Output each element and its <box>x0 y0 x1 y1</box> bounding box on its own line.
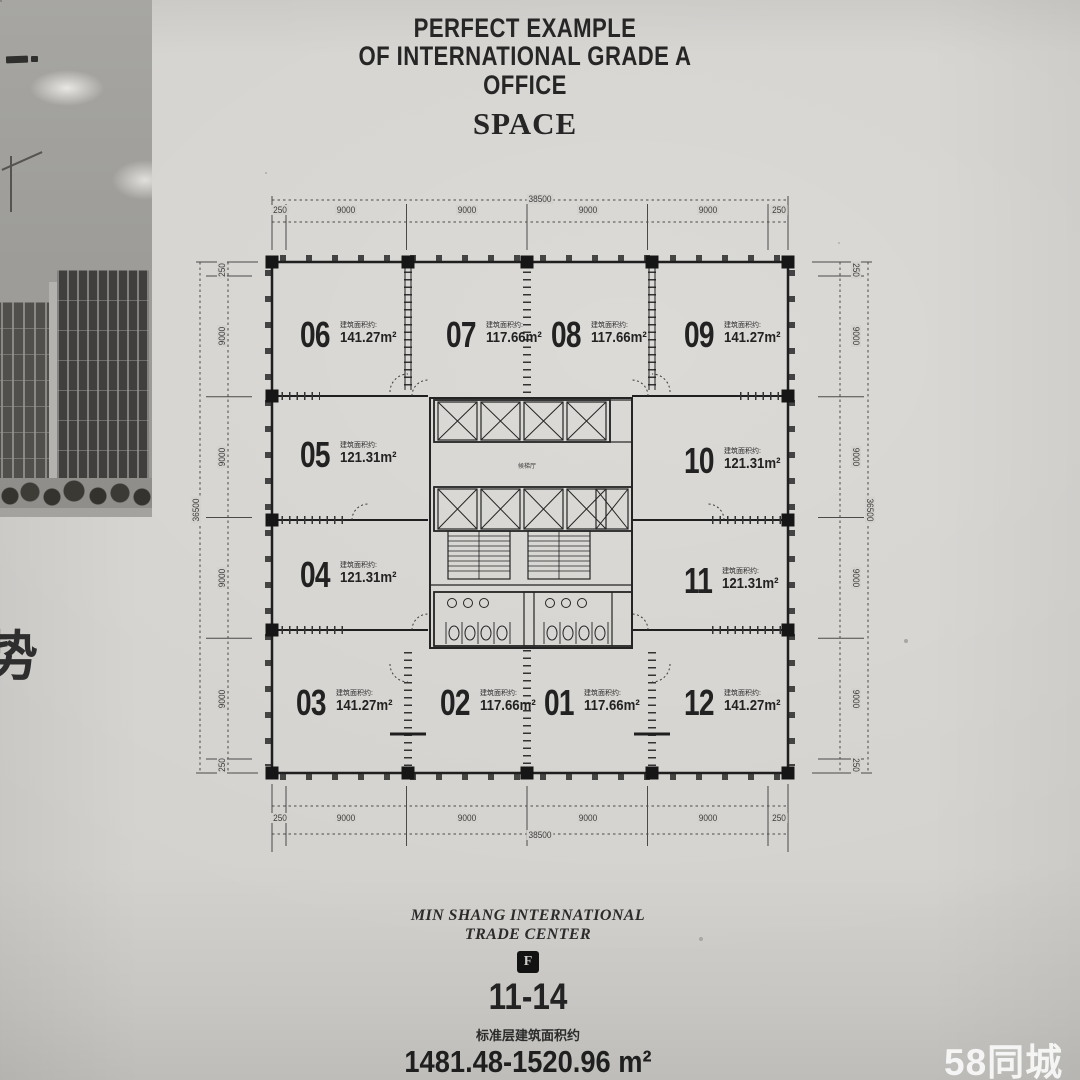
dim-bay: 9000 <box>851 325 861 347</box>
unit-number: 03 <box>296 686 326 720</box>
floor-range: 11-14 <box>79 978 977 1016</box>
area-prefix: 建筑面积约: <box>724 690 788 697</box>
area-prefix: 建筑面积约: <box>584 690 647 697</box>
office-tower-right <box>57 270 149 510</box>
dim-bay: 9000 <box>851 688 861 710</box>
dim-end: 250 <box>851 261 861 279</box>
dim-end: 250 <box>770 205 788 215</box>
unit-number: 08 <box>551 318 581 352</box>
dim-total-right: 36500 <box>865 497 875 524</box>
brand-name-line-2: TRADE CENTER <box>0 925 1056 944</box>
crane-line <box>1 151 42 171</box>
headline-line-1: PERFECT EXAMPLE <box>95 14 956 42</box>
unit-area: 121.31m² <box>340 450 397 465</box>
area-prefix: 建筑面积约: <box>336 690 400 697</box>
unit-area: 141.27m² <box>724 698 781 713</box>
headline-line-3: OFFICE <box>95 71 956 99</box>
dim-bay: 9000 <box>335 813 357 823</box>
dim-bay: 9000 <box>697 205 719 215</box>
unit-area: 117.66m² <box>591 330 647 345</box>
unit-area: 117.66m² <box>584 698 640 713</box>
unit-number: 11 <box>684 564 712 598</box>
area-prefix: 建筑面积约: <box>340 322 404 329</box>
area-prefix: 建筑面积约: <box>340 442 404 449</box>
dim-total-top: 38500 <box>527 194 554 204</box>
dim-bay: 9000 <box>217 325 227 347</box>
core-lobby-label: 候梯厅 <box>518 461 536 470</box>
unit-number: 10 <box>684 444 714 478</box>
crane-line <box>10 156 12 212</box>
dim-end: 250 <box>271 205 289 215</box>
dim-bay: 9000 <box>577 205 599 215</box>
unit-label-09: 09 建筑面积约: 141.27m² <box>684 318 788 352</box>
unit-area: 141.27m² <box>724 330 781 345</box>
unit-label-07: 07 建筑面积约: 117.66m² <box>446 318 549 352</box>
unit-label-12: 12 建筑面积约: 141.27m² <box>684 686 788 720</box>
unit-number: 05 <box>300 438 330 472</box>
dim-end: 250 <box>217 756 227 774</box>
unit-label-10: 10 建筑面积约: 121.31m² <box>684 444 788 478</box>
unit-label-06: 06 建筑面积约: 141.27m² <box>300 318 404 352</box>
brand-logo: F <box>517 951 539 973</box>
site-watermark-58tongcheng: 58同城 <box>944 1032 1063 1080</box>
headline-space-word: SPACE <box>0 106 1050 142</box>
unit-label-01: 01 建筑面积约: 117.66m² <box>544 686 647 720</box>
area-prefix: 建筑面积约: <box>724 322 788 329</box>
brand-logo-letter: F <box>524 954 533 970</box>
dim-bay: 9000 <box>851 567 861 589</box>
unit-label-11: 11 建筑面积约: 121.31m² <box>684 564 786 598</box>
dim-bay: 9000 <box>217 567 227 589</box>
dim-bay: 9000 <box>456 813 478 823</box>
brand-name-line-1: MIN SHANG INTERNATIONAL <box>0 906 1056 925</box>
ground-strip <box>0 508 152 517</box>
unit-number: 09 <box>684 318 714 352</box>
unit-number: 12 <box>684 686 714 720</box>
floor-area-note: 标准层建筑面积约 <box>0 1025 1056 1044</box>
unit-area: 117.66m² <box>486 330 542 345</box>
unit-number: 01 <box>544 686 574 720</box>
door-arcs <box>352 374 724 682</box>
dim-bay: 9000 <box>456 205 478 215</box>
headline: PERFECT EXAMPLE OF INTERNATIONAL GRADE A… <box>0 14 1050 142</box>
dim-bay: 9000 <box>335 205 357 215</box>
headline-line-2: OF INTERNATIONAL GRADE A <box>95 42 956 70</box>
dim-end: 250 <box>217 261 227 279</box>
unit-area: 141.27m² <box>336 698 393 713</box>
area-prefix: 建筑面积约: <box>724 448 788 455</box>
unit-number: 04 <box>300 558 330 592</box>
paper-specks <box>0 0 2 2</box>
flyer-page: 势 PERFECT EXAMPLE OF INTERNATIONAL GRADE… <box>0 0 1080 1080</box>
dim-end: 250 <box>770 813 788 823</box>
dim-total-left: 36500 <box>191 497 201 524</box>
unit-area: 121.31m² <box>724 456 781 471</box>
tower-gap-highlight <box>49 282 57 510</box>
dim-bay: 9000 <box>217 688 227 710</box>
dim-bay: 9000 <box>697 813 719 823</box>
dim-end: 250 <box>851 756 861 774</box>
area-prefix: 建筑面积约: <box>340 562 404 569</box>
trees-row <box>0 478 152 510</box>
cloud-shape <box>112 160 152 200</box>
area-prefix: 建筑面积约: <box>722 568 786 575</box>
dim-bay: 9000 <box>577 813 599 823</box>
area-prefix: 建筑面积约: <box>486 322 549 329</box>
unit-label-08: 08 建筑面积约: 117.66m² <box>551 318 654 352</box>
unit-label-02: 02 建筑面积约: 117.66m² <box>440 686 543 720</box>
service-core <box>430 398 632 648</box>
floor-area-range: 1481.48-1520.96 m² <box>63 1045 992 1079</box>
unit-number: 07 <box>446 318 476 352</box>
unit-area: 121.31m² <box>340 570 397 585</box>
area-prefix: 建筑面积约: <box>591 322 654 329</box>
unit-number: 02 <box>440 686 470 720</box>
floor-plan-drawing <box>160 180 890 870</box>
dim-bay: 9000 <box>851 446 861 468</box>
area-prefix: 建筑面积约: <box>480 690 543 697</box>
dim-end: 250 <box>271 813 289 823</box>
footer: MIN SHANG INTERNATIONAL TRADE CENTER F 1… <box>0 906 1056 1079</box>
unit-number: 06 <box>300 318 330 352</box>
unit-label-05: 05 建筑面积约: 121.31m² <box>300 438 404 472</box>
dim-total-bottom: 38500 <box>527 830 554 840</box>
dim-bay: 9000 <box>217 446 227 468</box>
clipped-side-character: 势 <box>0 612 38 691</box>
unit-label-04: 04 建筑面积约: 121.31m² <box>300 558 404 592</box>
unit-label-03: 03 建筑面积约: 141.27m² <box>296 686 400 720</box>
unit-area: 121.31m² <box>722 576 779 591</box>
unit-area: 141.27m² <box>340 330 397 345</box>
unit-area: 117.66m² <box>480 698 536 713</box>
